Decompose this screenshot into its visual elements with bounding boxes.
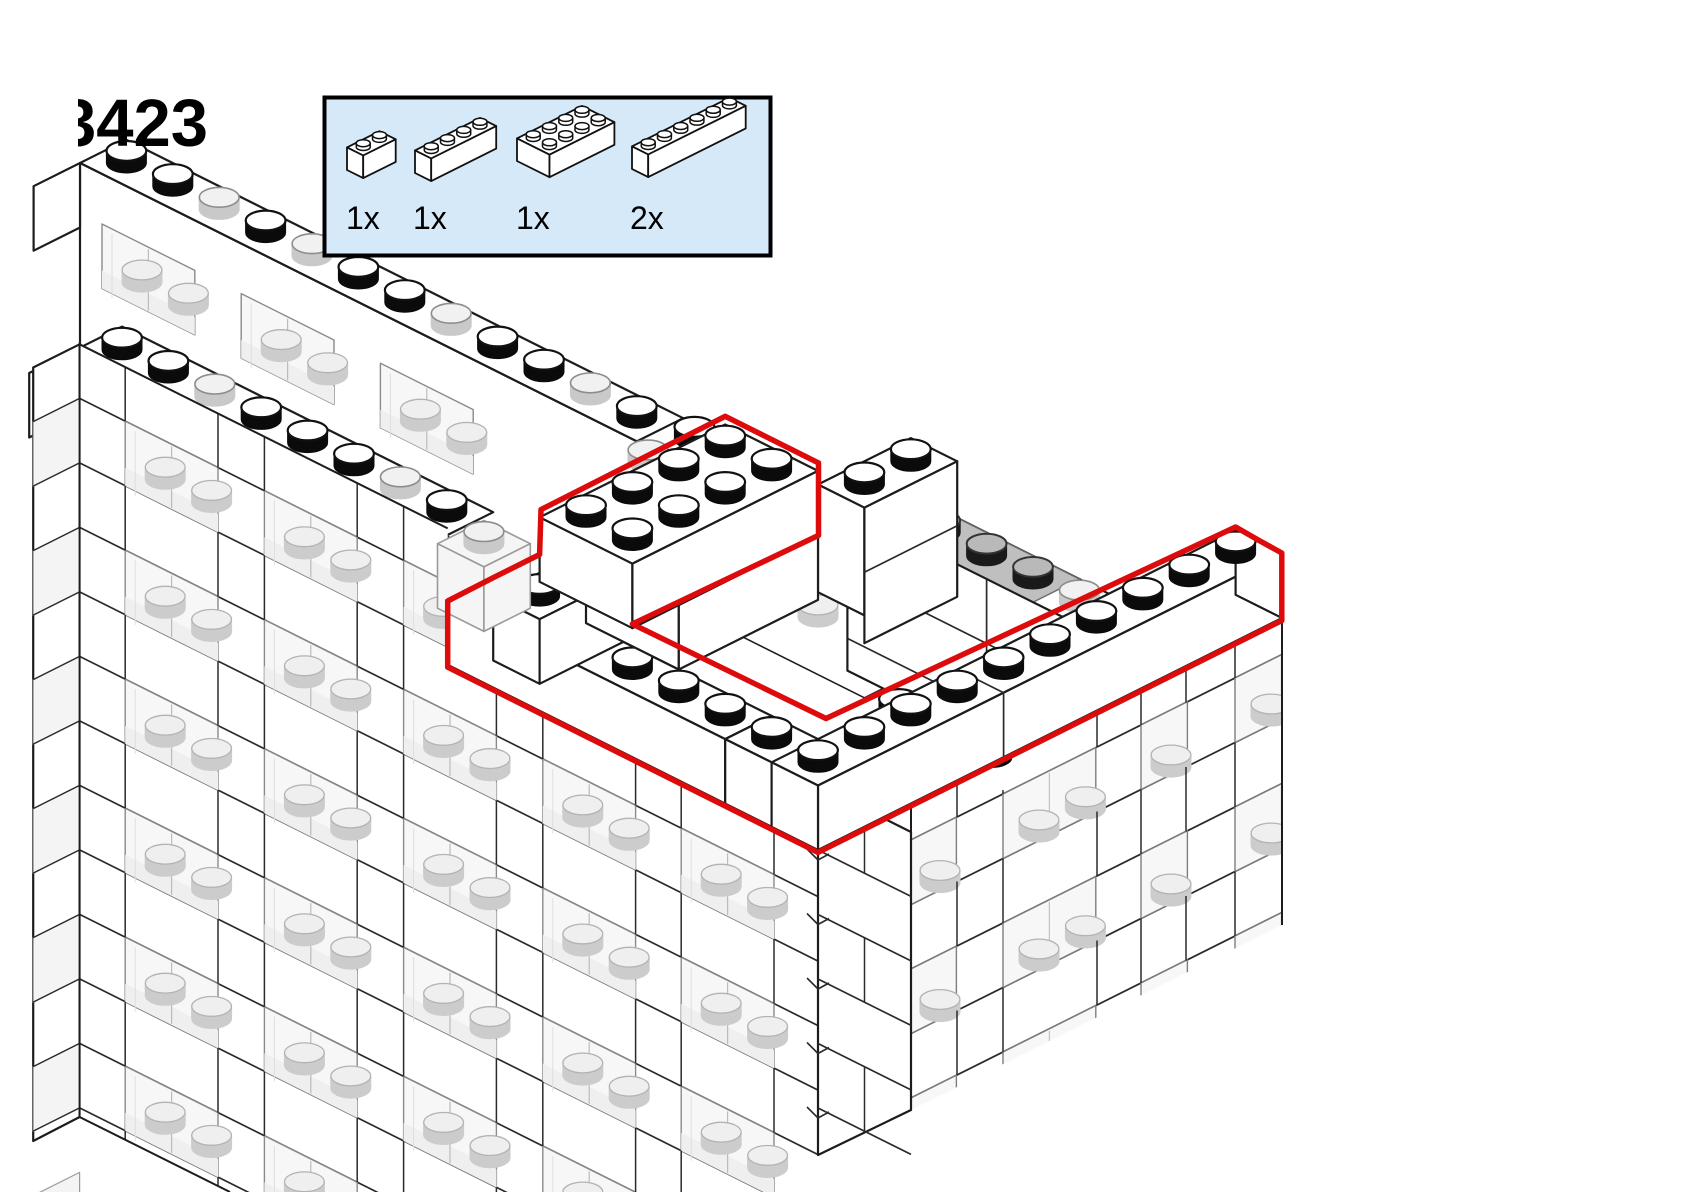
svg-text:1x: 1x <box>413 200 447 236</box>
svg-text:1x: 1x <box>516 200 550 236</box>
svg-text:3423: 3423 <box>59 86 208 161</box>
svg-text:2x: 2x <box>630 200 664 236</box>
svg-text:1x: 1x <box>346 200 380 236</box>
